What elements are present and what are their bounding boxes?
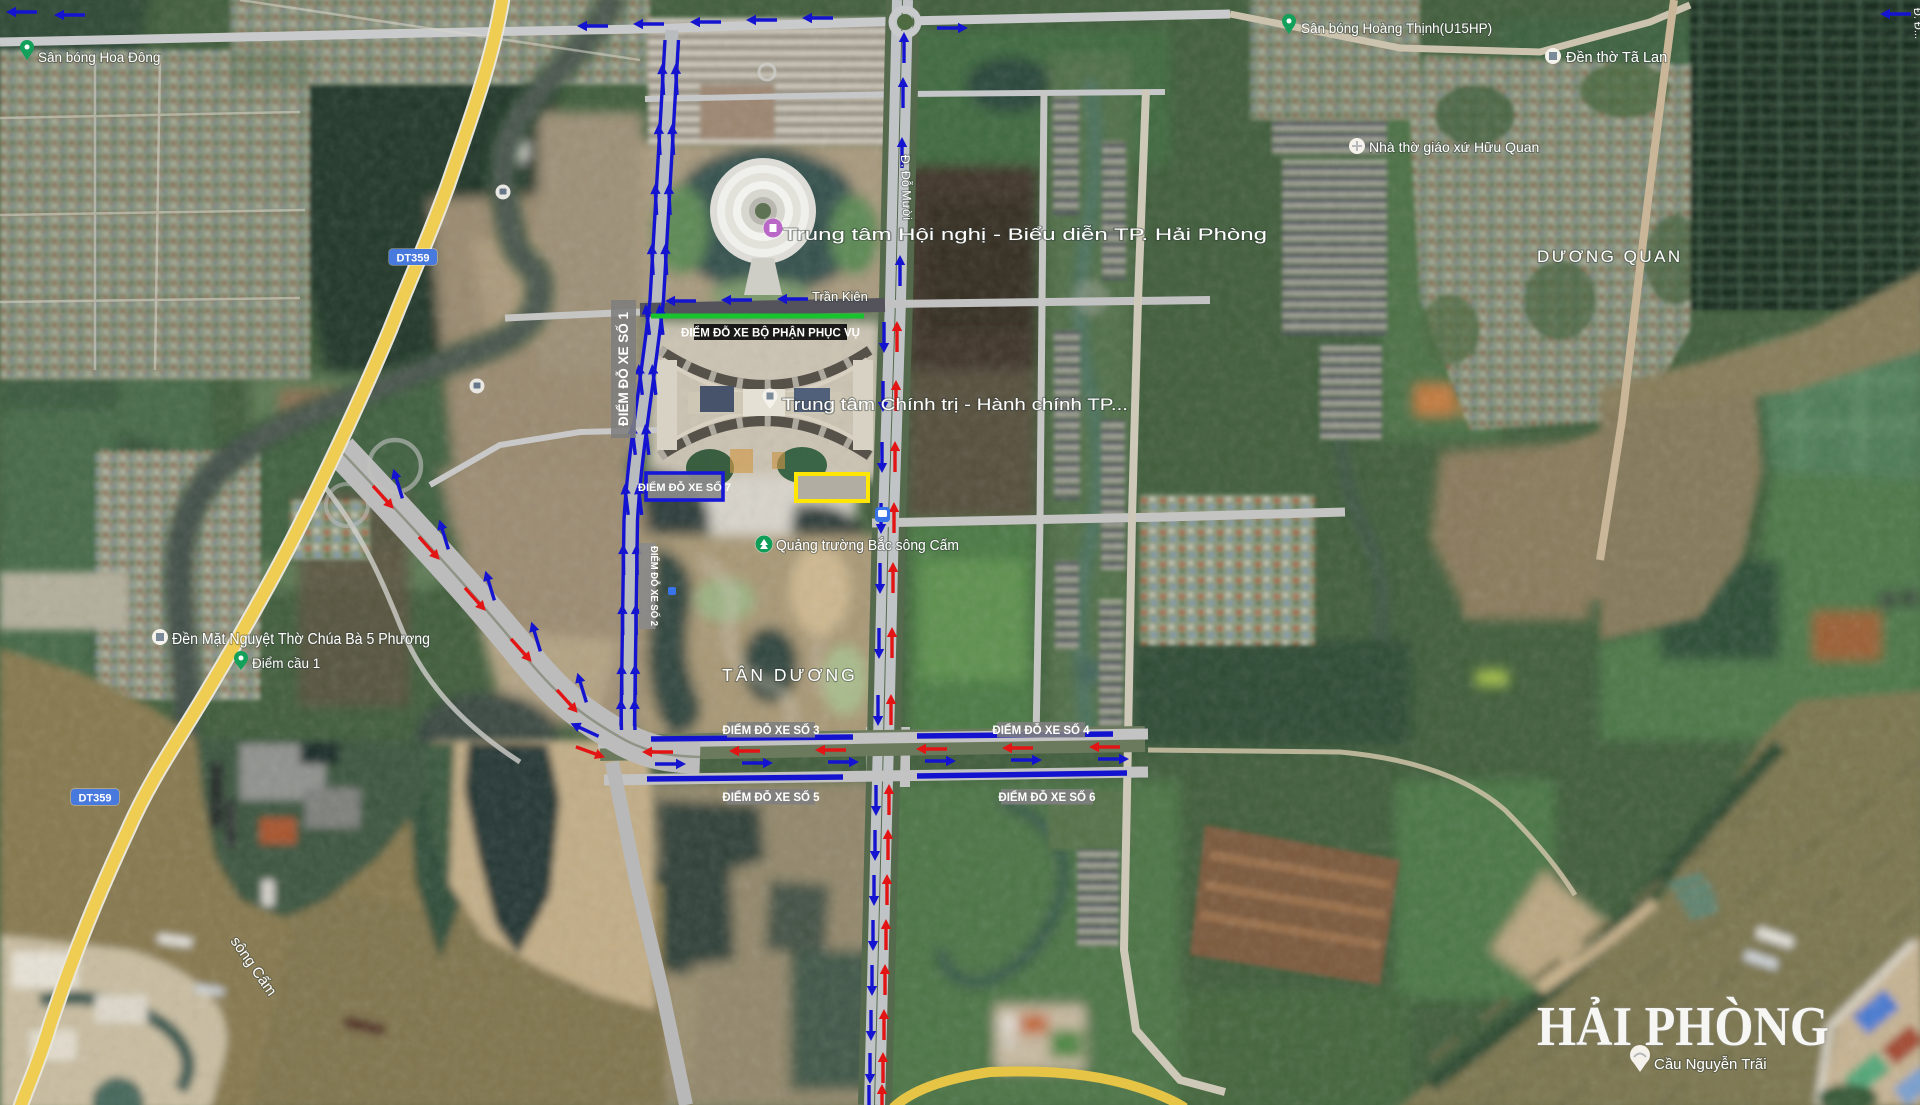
svg-text:Sân bóng Hoàng Thịnh(U15HP): Sân bóng Hoàng Thịnh(U15HP) bbox=[1301, 21, 1492, 36]
svg-text:DT359: DT359 bbox=[396, 253, 429, 265]
svg-text:Đ. Đ...: Đ. Đ... bbox=[1911, 8, 1920, 40]
svg-text:DƯƠNG QUAN: DƯƠNG QUAN bbox=[1537, 247, 1683, 266]
svg-text:ĐIỂM ĐỖ XE SỐ 7: ĐIỂM ĐỖ XE SỐ 7 bbox=[638, 480, 731, 494]
svg-text:Cầu Nguyễn Trãi: Cầu Nguyễn Trãi bbox=[1654, 1056, 1767, 1073]
svg-text:Trung tâm Hội nghị - Biểu di: Trung tâm Hội nghị - Biểu diễn TP. Hải P… bbox=[783, 225, 1267, 244]
svg-text:ĐIỂM ĐỖ XE BỘ PHẬN PHỤC VỤ: ĐIỂM ĐỖ XE BỘ PHẬN PHỤC VỤ bbox=[681, 327, 860, 340]
svg-text:Đ. Đỗ Mười: Đ. Đỗ Mười bbox=[898, 155, 915, 221]
svg-text:ĐIỂM ĐỖ XE SỐ 4: ĐIỂM ĐỖ XE SỐ 4 bbox=[992, 723, 1090, 737]
svg-text:ĐIỂM ĐỖ XE SỐ 1: ĐIỂM ĐỖ XE SỐ 1 bbox=[616, 311, 631, 426]
svg-text:Điểm cầu 1: Điểm cầu 1 bbox=[252, 656, 320, 671]
svg-text:ĐIỂM ĐỖ XE SỐ 3: ĐIỂM ĐỖ XE SỐ 3 bbox=[722, 723, 819, 737]
svg-text:DT359: DT359 bbox=[78, 793, 111, 805]
svg-text:Trung tâm Chính trị - Hành c: Trung tâm Chính trị - Hành chính TP... bbox=[782, 396, 1128, 414]
svg-text:ĐIỂM ĐỖ XE SỐ 5: ĐIỂM ĐỖ XE SỐ 5 bbox=[722, 790, 820, 804]
svg-text:TÂN DƯƠNG: TÂN DƯƠNG bbox=[722, 665, 858, 685]
svg-text:Đền thờ Tã Lan: Đền thờ Tã Lan bbox=[1566, 50, 1667, 66]
svg-text:ĐIỂM ĐỖ XE SỐ 6: ĐIỂM ĐỖ XE SỐ 6 bbox=[998, 790, 1095, 804]
svg-text:Trần Kiên: Trần Kiên bbox=[812, 289, 868, 304]
svg-text:Sân bóng Hoa Đông: Sân bóng Hoa Đông bbox=[38, 50, 160, 65]
svg-text:ĐIỂM ĐỖ XE SỐ 2: ĐIỂM ĐỖ XE SỐ 2 bbox=[648, 546, 662, 626]
svg-text:HẢI PHÒNG: HẢI PHÒNG bbox=[1537, 996, 1829, 1058]
svg-text:Quảng trường Bắc sông Cấm: Quảng trường Bắc sông Cấm bbox=[776, 537, 959, 554]
svg-text:Nhà thờ giáo xứ Hữu Quan: Nhà thờ giáo xứ Hữu Quan bbox=[1369, 139, 1539, 155]
svg-text:Đền Mặt Nguyệt Thờ Chúa Bà 5 P: Đền Mặt Nguyệt Thờ Chúa Bà 5 Phương bbox=[172, 631, 430, 648]
